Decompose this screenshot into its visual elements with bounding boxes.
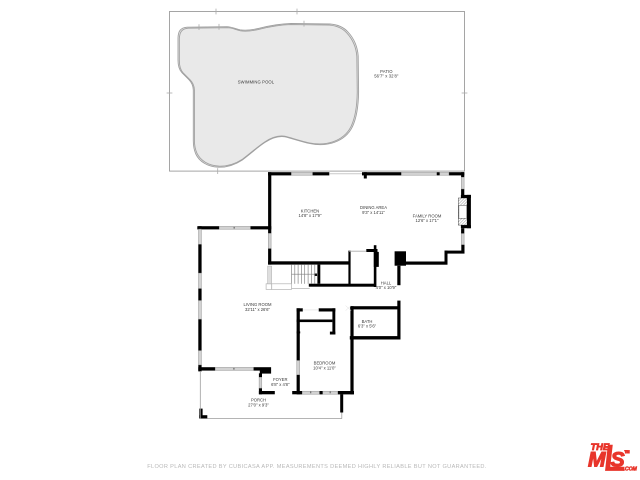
svg-text:56'7" x 32'8": 56'7" x 32'8" (374, 74, 399, 79)
svg-text:.COM: .COM (624, 467, 638, 473)
svg-text:M: M (588, 448, 606, 471)
svg-text:TM: TM (625, 450, 630, 454)
svg-text:32'11" x 26'6": 32'11" x 26'6" (245, 307, 270, 312)
svg-text:4'0" x 10'9": 4'0" x 10'9" (376, 285, 397, 290)
svg-text:S: S (611, 448, 625, 471)
svg-text:6'3" x 5'6": 6'3" x 5'6" (358, 324, 377, 329)
svg-text:6'8" x 4'8": 6'8" x 4'8" (271, 382, 290, 387)
svg-text:9'3" x 14'11": 9'3" x 14'11" (362, 210, 385, 215)
svg-text:14'8" x 17'9": 14'8" x 17'9" (299, 213, 322, 218)
svg-text:SWIMMING POOL: SWIMMING POOL (238, 80, 275, 85)
svg-text:27'0" x 9'3": 27'0" x 9'3" (248, 402, 269, 407)
svg-text:12'6" x 17'1": 12'6" x 17'1" (416, 218, 439, 223)
svg-text:10'4" x 11'0": 10'4" x 11'0" (313, 365, 336, 370)
svg-text:FLOOR PLAN CREATED BY CUBICASA: FLOOR PLAN CREATED BY CUBICASA APP. MEAS… (147, 464, 487, 470)
